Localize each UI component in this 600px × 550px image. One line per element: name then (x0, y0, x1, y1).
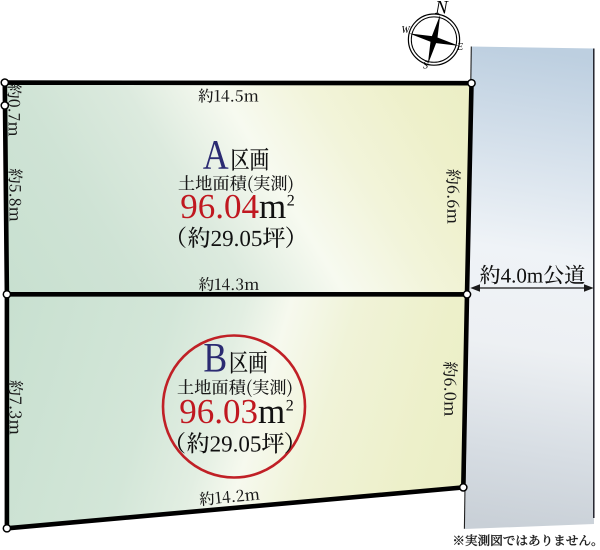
svg-text:E: E (456, 42, 463, 53)
svg-text:S: S (423, 61, 428, 72)
svg-text:N: N (434, 0, 449, 19)
